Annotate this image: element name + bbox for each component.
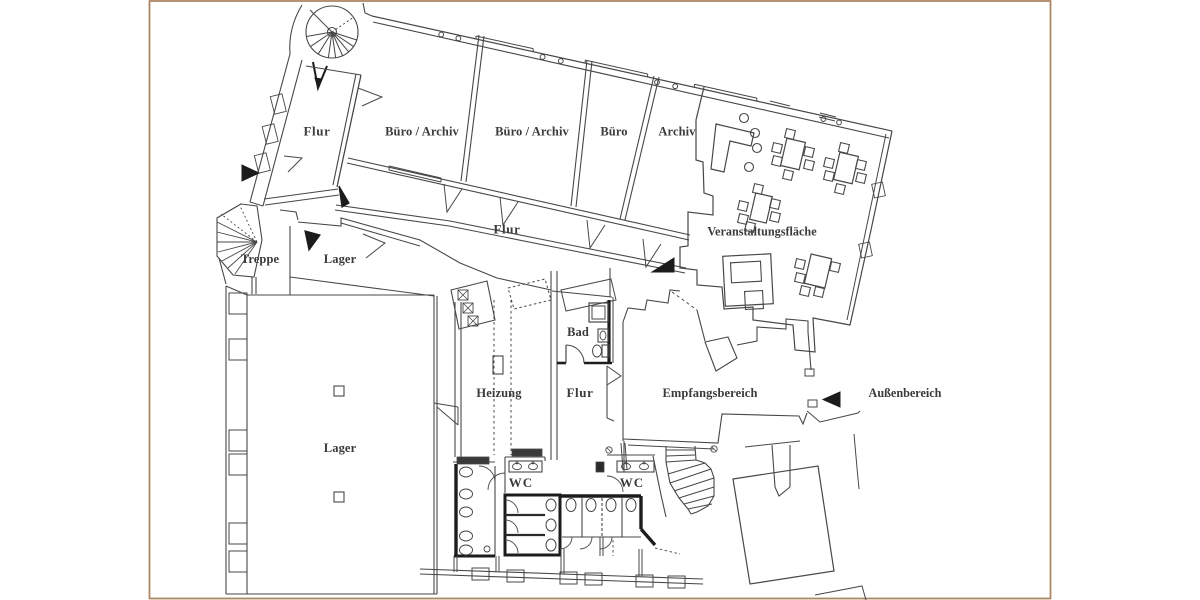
svg-text:Flur: Flur	[494, 222, 521, 237]
svg-text:Empfangsbereich: Empfangsbereich	[662, 386, 757, 400]
svg-text:WC: WC	[620, 475, 644, 490]
svg-text:Flur: Flur	[567, 385, 594, 400]
svg-text:Bad: Bad	[567, 325, 589, 339]
svg-text:Lager: Lager	[324, 441, 357, 455]
svg-text:Außenbereich: Außenbereich	[869, 386, 942, 400]
svg-text:WC: WC	[509, 475, 533, 490]
svg-text:Treppe: Treppe	[241, 252, 280, 266]
svg-text:Lager: Lager	[324, 252, 357, 266]
svg-text:Heizung: Heizung	[476, 386, 522, 400]
svg-text:Büro / Archiv: Büro / Archiv	[385, 125, 459, 139]
svg-text:Büro: Büro	[600, 125, 627, 139]
svg-text:Flur: Flur	[304, 124, 331, 139]
svg-text:Büro / Archiv: Büro / Archiv	[495, 125, 569, 139]
svg-text:Archiv: Archiv	[658, 125, 696, 139]
svg-text:Veranstaltungsfläche: Veranstaltungsfläche	[707, 225, 817, 239]
